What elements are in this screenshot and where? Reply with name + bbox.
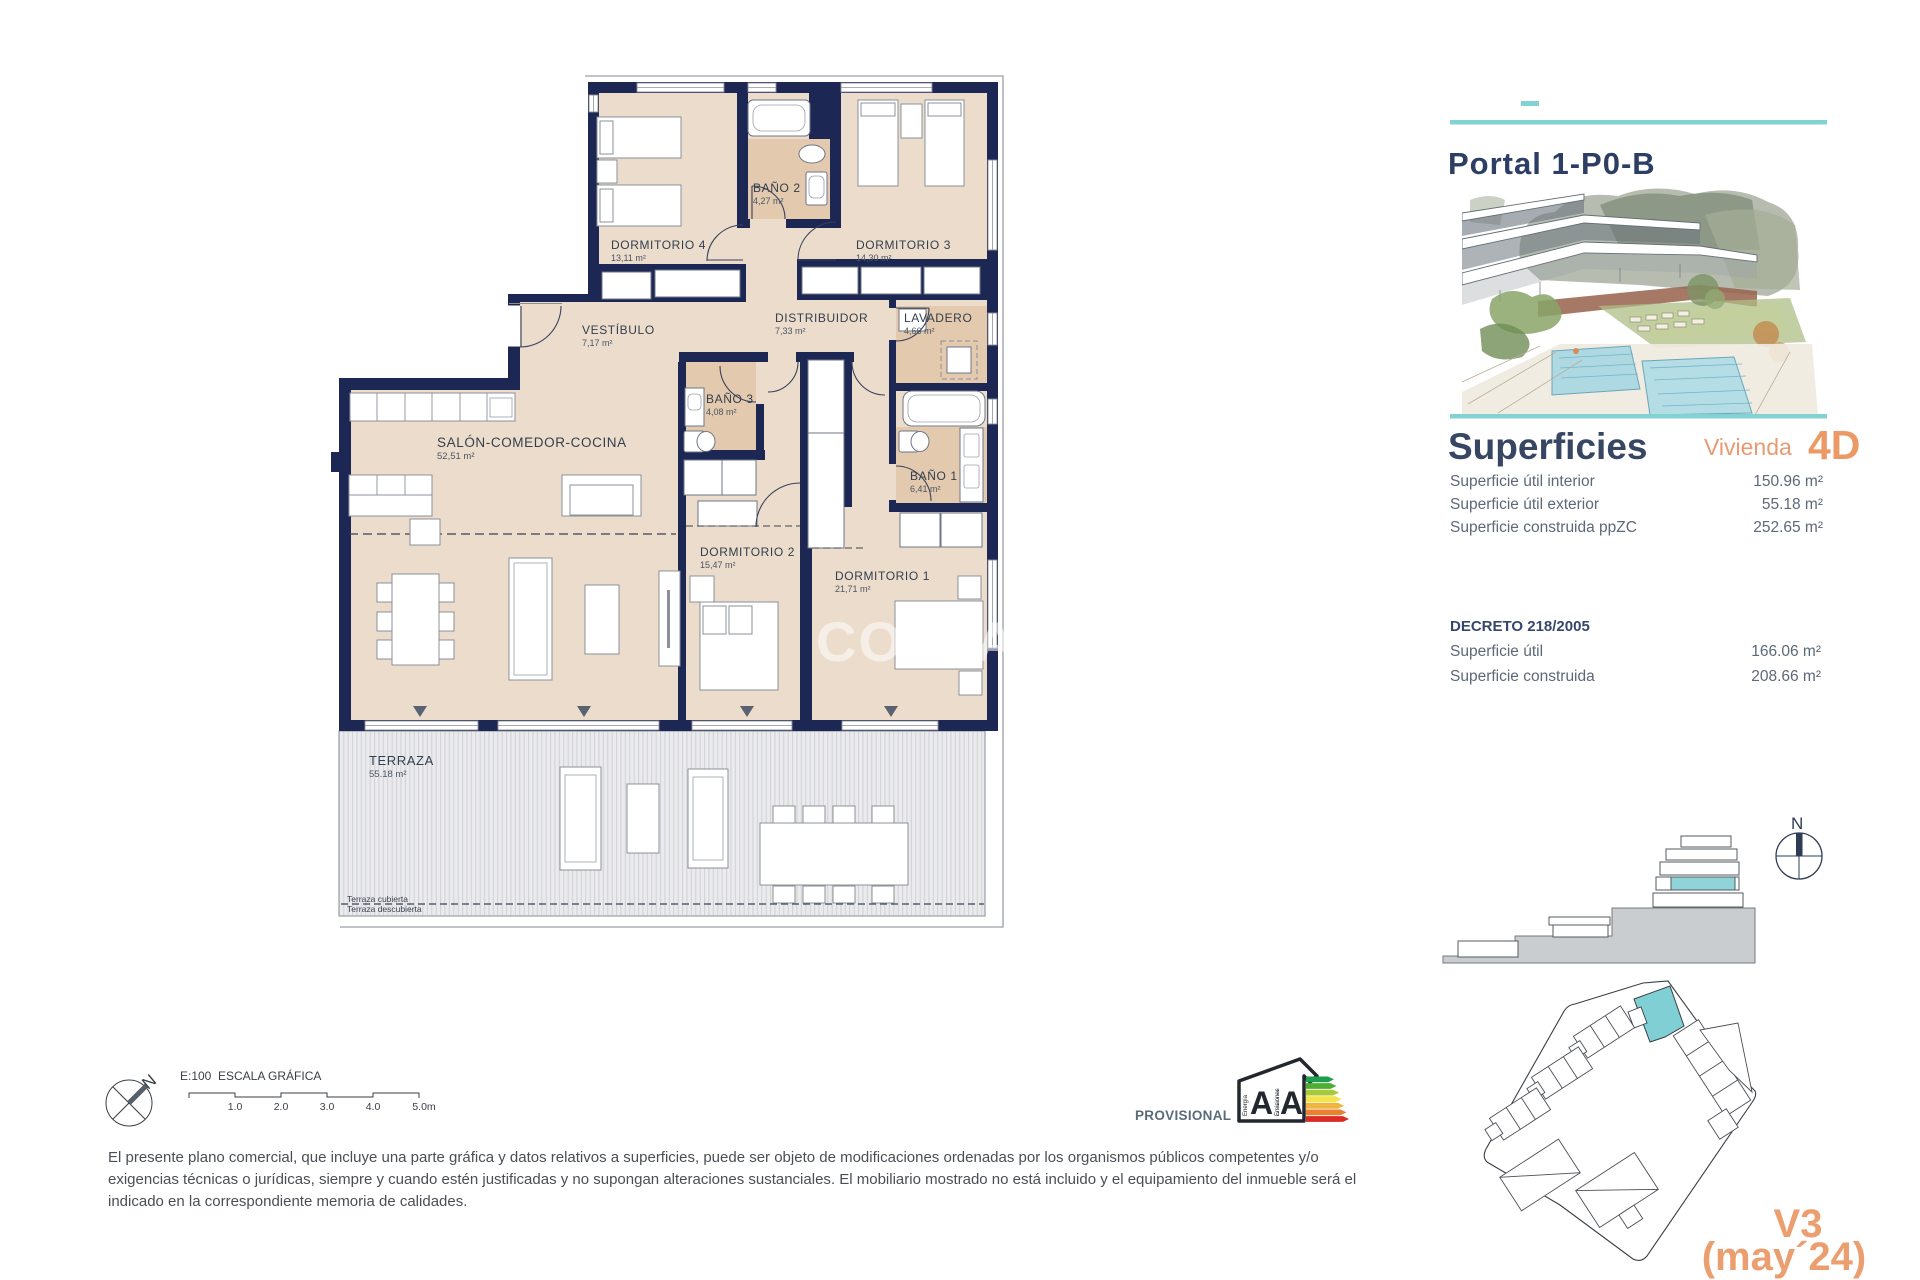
svg-text:7,33 m²: 7,33 m² (775, 326, 806, 336)
svg-text:Superficie construida: Superficie construida (1450, 668, 1595, 685)
svg-text:DORMITORIO 1: DORMITORIO 1 (835, 569, 930, 583)
svg-text:Superficie útil: Superficie útil (1450, 643, 1543, 660)
svg-text:2.0: 2.0 (274, 1101, 289, 1113)
svg-text:N: N (1791, 814, 1803, 833)
svg-text:Portal 1-P0-B: Portal 1-P0-B (1448, 146, 1656, 181)
svg-text:252.65 m²: 252.65 m² (1753, 519, 1823, 536)
svg-text:DORMITORIO 4: DORMITORIO 4 (611, 238, 706, 252)
svg-text:A: A (1280, 1085, 1303, 1121)
svg-text:Superficie útil exterior: Superficie útil exterior (1450, 496, 1599, 513)
svg-text:PROVISIONAL: PROVISIONAL (1135, 1108, 1231, 1123)
svg-text:3.0: 3.0 (320, 1101, 335, 1113)
svg-text:55.18 m²: 55.18 m² (369, 769, 407, 780)
svg-text:21,71 m²: 21,71 m² (835, 584, 871, 594)
svg-text:55.18 m²: 55.18 m² (1762, 496, 1823, 513)
svg-text:A: A (1250, 1085, 1273, 1121)
svg-text:COSTA: COSTA (816, 610, 1018, 673)
svg-text:DECRETO 218/2005: DECRETO 218/2005 (1450, 618, 1590, 635)
svg-text:TERRAZA: TERRAZA (369, 753, 434, 768)
svg-text:Terraza descubierta: Terraza descubierta (347, 904, 422, 914)
svg-text:150.96 m²: 150.96 m² (1753, 473, 1823, 490)
svg-text:4,66 m²: 4,66 m² (904, 326, 935, 336)
svg-text:El presente plano comercial, q: El presente plano comercial, que incluye… (108, 1149, 1319, 1166)
svg-text:Vivienda: Vivienda (1704, 434, 1792, 460)
svg-text:indicado en la correspondiente: indicado en la correspondiente memoria d… (108, 1193, 467, 1210)
svg-text:VESTÍBULO: VESTÍBULO (582, 322, 655, 337)
svg-text:Superficies: Superficies (1448, 426, 1647, 467)
svg-text:Superficie construida ppZC: Superficie construida ppZC (1450, 519, 1637, 536)
svg-text:DORMITORIO 2: DORMITORIO 2 (700, 545, 795, 559)
svg-text:DORMITORIO 3: DORMITORIO 3 (856, 238, 951, 252)
svg-text:BAÑO 3: BAÑO 3 (706, 392, 754, 406)
svg-text:166.06 m²: 166.06 m² (1751, 643, 1821, 660)
svg-text:(may´24): (may´24) (1702, 1235, 1867, 1279)
svg-text:E:100: E:100 (180, 1069, 212, 1083)
svg-text:SALÓN-COMEDOR-COCINA: SALÓN-COMEDOR-COCINA (437, 435, 627, 450)
svg-text:52,51 m²: 52,51 m² (437, 451, 475, 462)
svg-text:7,17 m²: 7,17 m² (582, 338, 613, 348)
svg-text:5.0m: 5.0m (412, 1101, 436, 1113)
svg-text:ESCALA GRÁFICA: ESCALA GRÁFICA (218, 1068, 321, 1083)
svg-text:4.0: 4.0 (366, 1101, 381, 1113)
svg-text:13,11 m²: 13,11 m² (611, 253, 646, 263)
svg-text:6,41 m²: 6,41 m² (910, 484, 941, 494)
svg-text:208.66 m²: 208.66 m² (1751, 668, 1821, 685)
svg-text:BAÑO 1: BAÑO 1 (910, 469, 958, 483)
svg-text:exigencias técnicas o jurídica: exigencias técnicas o jurídicas, siempre… (108, 1171, 1356, 1188)
svg-text:14,30 m²: 14,30 m² (856, 253, 892, 263)
svg-text:4,08 m²: 4,08 m² (706, 407, 737, 417)
svg-text:15,47 m²: 15,47 m² (700, 560, 736, 570)
svg-text:Energía: Energía (1243, 1094, 1249, 1116)
svg-text:DISTRIBUIDOR: DISTRIBUIDOR (775, 311, 868, 325)
svg-text:Superficie útil interior: Superficie útil interior (1450, 473, 1595, 490)
svg-text:1.0: 1.0 (228, 1101, 243, 1113)
svg-text:LAVADERO: LAVADERO (904, 311, 972, 325)
svg-text:4,27 m²: 4,27 m² (753, 196, 784, 206)
svg-text:4D: 4D (1808, 422, 1860, 468)
svg-text:Terraza cubierta: Terraza cubierta (347, 894, 408, 904)
svg-text:BAÑO 2: BAÑO 2 (753, 181, 801, 195)
